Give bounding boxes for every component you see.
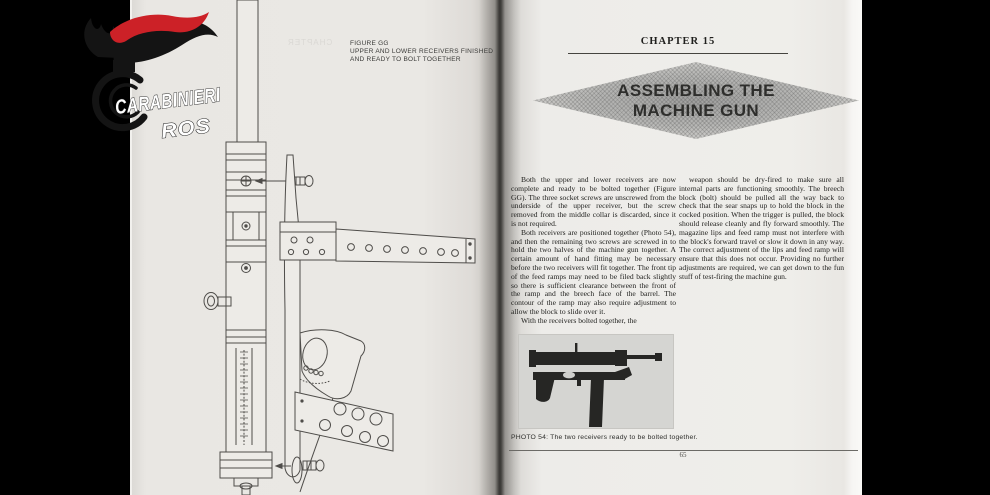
page-number: 65 [673,451,693,459]
body-column-left: Both the upper and lower receivers are n… [511,176,676,326]
chapter-rule [568,53,788,54]
chapter-header: CHAPTER 15 [568,36,788,47]
chapter-title-line1: ASSEMBLING THE [617,81,775,101]
book-photo-stage: CHAPTER [0,0,990,495]
figure-caption-line1: FIGURE GG [350,40,500,48]
logo-subtitle: ROS [160,115,212,143]
figure-caption: FIGURE GG UPPER AND LOWER RECEIVERS FINI… [350,40,500,63]
chapter-title-line2: MACHINE GUN [633,101,759,121]
body-column-right: weapon should be dry-fired to make sure … [679,176,844,282]
paragraph-3: With the receivers bolted together, the [511,317,676,326]
carabinieri-ros-logo: CARABINIERI ROS [66,0,246,155]
paragraph-4: weapon should be dry-fired to make sure … [679,176,844,282]
figure-caption-line2: UPPER AND LOWER RECEIVERS FINISHED [350,48,500,56]
photo-54 [519,335,673,428]
paragraph-2: Both receivers are positioned together (… [511,229,676,317]
paragraph-1: Both the upper and lower receivers are n… [511,176,676,229]
figure-caption-line3: AND READY TO BOLT TOGETHER [350,56,500,64]
logo-title: CARABINIERI [114,84,222,119]
photo-54-image [519,335,673,428]
photo-caption: PHOTO 54: The two receivers ready to be … [511,434,811,441]
